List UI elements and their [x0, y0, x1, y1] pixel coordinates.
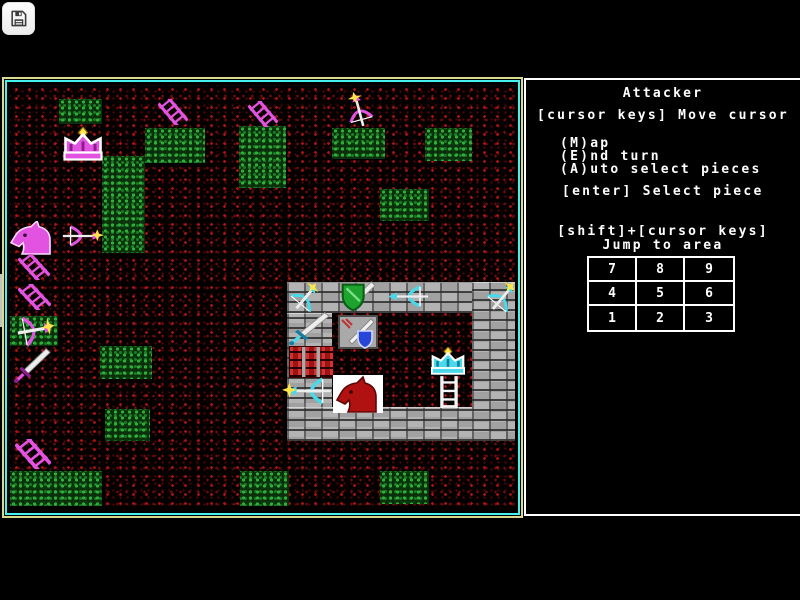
jump-grid-cell: 7: [589, 258, 637, 282]
jump-combo-label: [shift]+[cursor keys]: [526, 224, 800, 239]
floppy-disk-icon: [9, 9, 28, 28]
attacker-ladder[interactable]: [18, 284, 51, 310]
jump-grid-cell: 5: [637, 282, 685, 306]
menu-item-auto-select: (A)uto select pieces: [560, 162, 762, 177]
jump-grid-cell: 3: [685, 306, 733, 330]
terrain-patch: [102, 156, 145, 253]
terrain-patch: [239, 126, 286, 188]
knight-icon: [10, 221, 56, 255]
attacker-king-crown[interactable]: [60, 127, 106, 161]
map-border: [2, 77, 523, 518]
bow-icon: [282, 377, 334, 405]
attacker-ladder[interactable]: [18, 254, 50, 280]
defender-ladder[interactable]: [436, 375, 462, 409]
jump-grid-cell: 6: [685, 282, 733, 306]
instruction-move-cursor: [cursor keys] Move cursor: [526, 108, 800, 123]
ladder-icon: [248, 101, 278, 127]
jump-grid-cell: 2: [637, 306, 685, 330]
terrain-patch: [332, 128, 385, 159]
sword-icon: [12, 347, 52, 385]
terrain-patch: [380, 189, 429, 221]
info-panel: Attacker [cursor keys] Move cursor (M)ap…: [524, 78, 800, 516]
defender-archer[interactable]: [282, 377, 334, 405]
terrain-patch: [425, 128, 472, 161]
defender-king-crown[interactable]: [428, 347, 468, 375]
armory-icon: [338, 315, 378, 349]
jump-grid-cell: 9: [685, 258, 733, 282]
defender-swordsman[interactable]: [287, 311, 331, 347]
jump-grid-cell: 8: [637, 258, 685, 282]
crown-icon: [428, 347, 468, 375]
cursor-selected-knight[interactable]: [333, 375, 383, 413]
jump-grid-cell: 1: [589, 306, 637, 330]
ladder-icon: [15, 439, 51, 469]
jump-area-label: Jump to area: [526, 238, 800, 253]
cursor-knight-icon: [333, 375, 383, 413]
attacker-ladder[interactable]: [248, 101, 278, 127]
castle-wall-rubble: [289, 346, 334, 378]
attacker-ladder[interactable]: [158, 99, 188, 125]
terrain-patch: [100, 346, 152, 379]
game-map[interactable]: [10, 85, 515, 510]
terrain-patch: [380, 471, 429, 504]
attacker-swordsman[interactable]: [12, 347, 52, 385]
defender-archer[interactable]: [385, 285, 431, 308]
bow-icon: [13, 311, 58, 349]
jump-grid-cell: 4: [589, 282, 637, 306]
ladder-icon: [18, 254, 50, 280]
terrain-patch: [145, 128, 205, 163]
defender-armory-tile[interactable]: [338, 315, 378, 349]
map-border-inner: [5, 80, 520, 515]
game-screen: ›: [0, 0, 800, 600]
attacker-knight[interactable]: [10, 221, 56, 255]
attacker-archer[interactable]: [13, 311, 58, 349]
attacker-ladder[interactable]: [15, 439, 51, 469]
attacker-archer[interactable]: [342, 88, 377, 131]
jump-grid: 789456123: [587, 256, 735, 332]
save-button[interactable]: [2, 2, 35, 35]
defender-shield-guard[interactable]: [337, 281, 377, 314]
terrain-patch: [59, 99, 102, 124]
ladder-icon: [436, 375, 462, 409]
turn-title: Attacker: [526, 86, 800, 101]
terrain-patch: [105, 409, 150, 441]
terrain-patch: [240, 471, 289, 506]
terrain-patch: [10, 471, 102, 506]
ladder-icon: [18, 284, 51, 310]
bow-icon: [385, 285, 431, 308]
bow-icon: [60, 225, 104, 247]
sword-icon: [287, 311, 331, 347]
instruction-select-piece: [enter] Select piece: [562, 184, 764, 199]
attacker-archer[interactable]: [60, 225, 104, 247]
ladder-icon: [158, 99, 188, 125]
crown-icon: [60, 127, 106, 161]
bow-icon: [342, 88, 377, 131]
shield-sword-icon: [337, 281, 377, 314]
